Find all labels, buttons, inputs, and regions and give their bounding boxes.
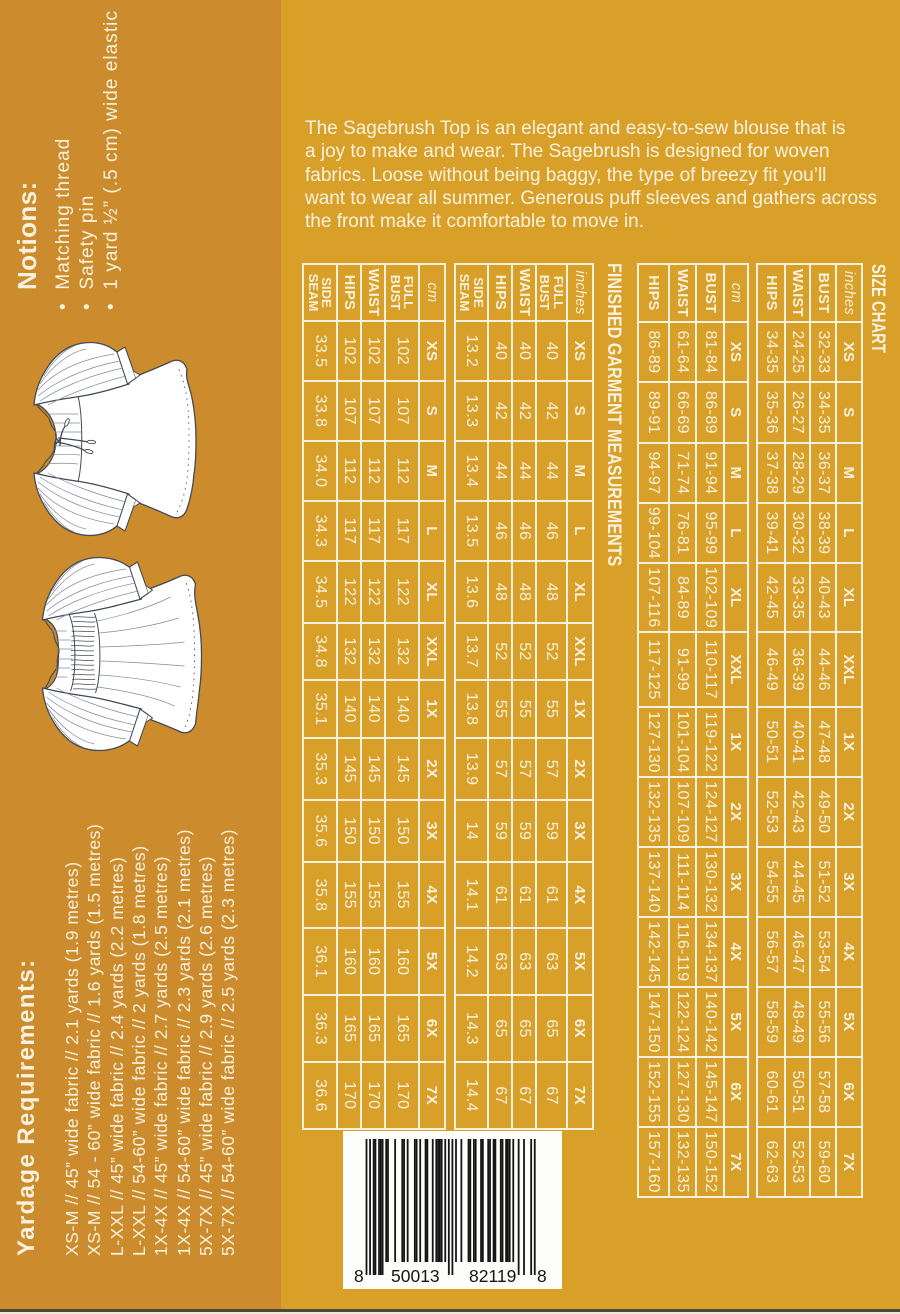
svg-text:50013: 50013: [391, 1266, 440, 1286]
svg-text:8: 8: [537, 1266, 547, 1286]
svg-text:8: 8: [354, 1266, 364, 1286]
svg-text:82119: 82119: [469, 1266, 516, 1286]
